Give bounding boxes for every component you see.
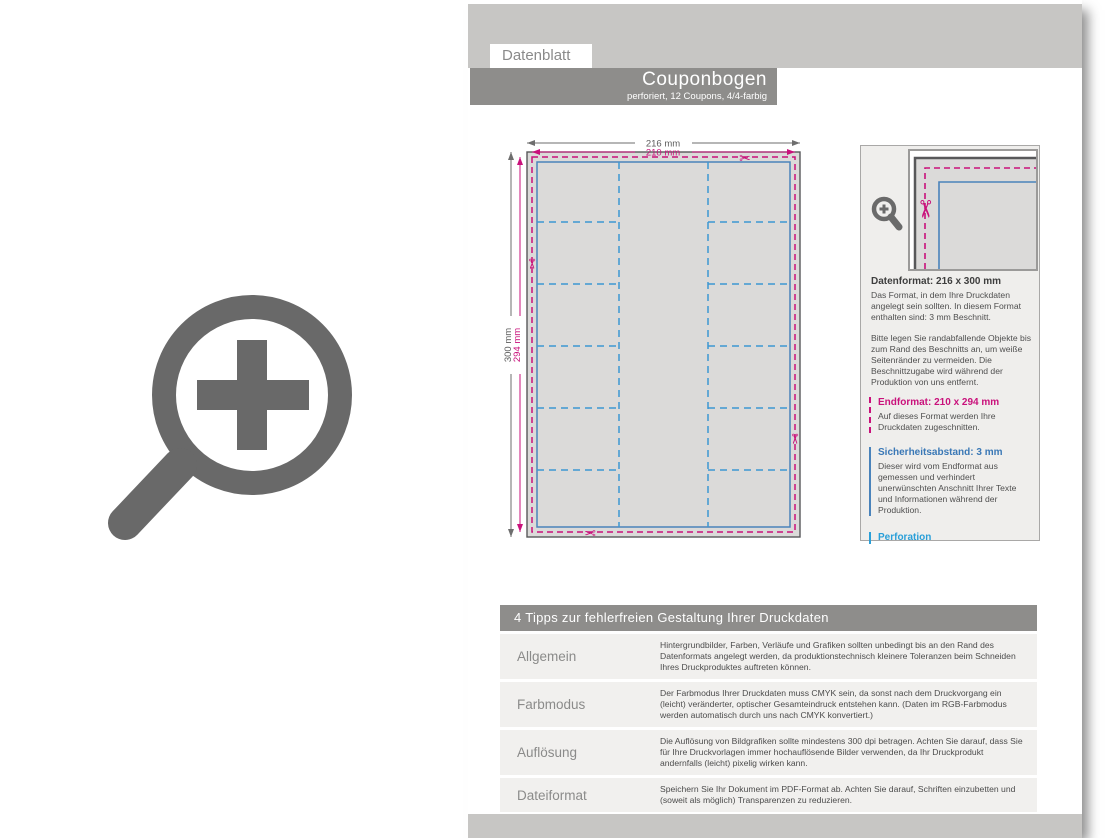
tips-table: 4 Tipps zur fehlerfreien Gestaltung Ihre… [500, 605, 1037, 812]
datasheet-page: Datenblatt Couponbogen perforiert, 12 Co… [468, 0, 1082, 838]
format-diagram: 216 mm 210 mm 300 mm 294 mm ✂ ✂ ✂ ✂ [498, 130, 854, 546]
row-text: Hintergrundbilder, Farben, Verläufe und … [660, 634, 1037, 679]
endformat-title: Endformat: 210 x 294 mm [878, 397, 1033, 409]
scissors-icon-top: ✂ [739, 150, 751, 166]
row-label: Dateiformat [500, 778, 660, 812]
plus-vertical [237, 340, 267, 450]
table-row: Auflösung Die Auflösung von Bildgrafiken… [500, 730, 1037, 775]
row-label: Allgemein [500, 634, 660, 679]
tips-header: 4 Tipps zur fehlerfreien Gestaltung Ihre… [500, 605, 1037, 631]
datenformat-text-2: Bitte legen Sie randabfallende Objekte b… [871, 333, 1033, 388]
datenformat-text-1: Das Format, in dem Ihre Druckdaten angel… [871, 290, 1033, 323]
scissors-icon-right: ✂ [787, 433, 803, 445]
section-endformat: Endformat: 210 x 294 mm Auf dieses Forma… [869, 397, 1033, 433]
scissors-icon-left: ✂ [524, 258, 540, 270]
footer-band [468, 814, 1082, 838]
table-row: Dateiformat Speichern Sie Ihr Dokument i… [500, 778, 1037, 812]
row-label: Farbmodus [500, 682, 660, 727]
product-title: Couponbogen [470, 68, 767, 91]
product-subtitle: perforiert, 12 Coupons, 4/4-farbig [470, 91, 767, 102]
dimension-label-210: 210 mm [646, 148, 680, 159]
datenformat-title: Datenformat: 216 x 300 mm [871, 276, 1033, 288]
zoom-in-icon[interactable] [100, 280, 370, 560]
magnifier-icon [867, 194, 905, 236]
section-perforation: Perforation [869, 532, 1033, 544]
row-text: Speichern Sie Ihr Dokument im PDF-Format… [660, 778, 1037, 812]
row-label: Auflösung [500, 730, 660, 775]
section-datenformat: Datenformat: 216 x 300 mm Das Format, in… [869, 276, 1033, 388]
perforation-title: Perforation [878, 532, 1033, 544]
format-info-panel: ✂ Datenformat: 216 x 300 mm Das Format, … [860, 145, 1040, 541]
endformat-text: Auf dieses Format werden Ihre Druckdaten… [878, 411, 1033, 433]
product-banner: Couponbogen perforiert, 12 Coupons, 4/4-… [470, 68, 777, 105]
detail-zoom-box: ✂ [908, 149, 1038, 271]
sicherheitsabstand-text: Dieser wird vom Endformat aus gemessen u… [878, 461, 1033, 516]
scissors-icon-bottom: ✂ [584, 525, 596, 541]
table-row: Allgemein Hintergrundbilder, Farben, Ver… [500, 634, 1037, 679]
sheet-datenformat [527, 152, 800, 537]
table-row: Farbmodus Der Farbmodus Ihrer Druckdaten… [500, 682, 1037, 727]
section-sicherheitsabstand: Sicherheitsabstand: 3 mm Dieser wird vom… [869, 447, 1033, 516]
row-text: Die Auflösung von Bildgrafiken sollte mi… [660, 730, 1037, 775]
magnifier-handle [125, 465, 180, 523]
dimension-label-294: 294 mm [512, 328, 523, 362]
sicherheitsabstand-title: Sicherheitsabstand: 3 mm [878, 447, 1033, 459]
scissors-icon-detail: ✂ [911, 199, 939, 219]
tab-datenblatt[interactable]: Datenblatt [490, 44, 592, 68]
row-text: Der Farbmodus Ihrer Druckdaten muss CMYK… [660, 682, 1037, 727]
